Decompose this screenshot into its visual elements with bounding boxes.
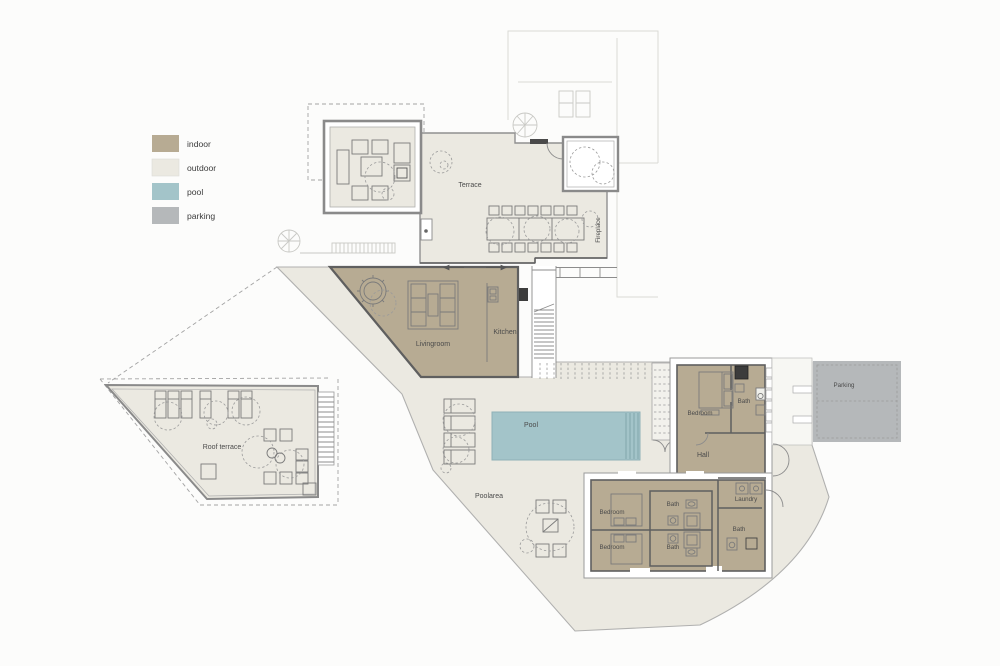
legend: indoor outdoor pool parking xyxy=(152,135,216,224)
floor-plan-drawing: Terrace Fireplace Livingroom Kitchen Poo… xyxy=(0,0,1000,666)
spiral-stair-upper xyxy=(513,113,537,137)
label-laundry: Laundry xyxy=(735,496,758,503)
spiral-stair-lower xyxy=(278,230,300,252)
lounge-pavilion xyxy=(324,121,421,213)
south-wing xyxy=(584,471,783,578)
sunlounger xyxy=(559,91,573,117)
fireplace-room-walls xyxy=(563,137,618,191)
label-poolarea: Poolarea xyxy=(475,493,503,500)
label-parking: Parking xyxy=(834,382,856,389)
legend-swatch-parking xyxy=(152,207,179,224)
legend-label-parking: parking xyxy=(187,211,215,221)
pool xyxy=(492,412,640,460)
parking-region xyxy=(813,361,901,442)
terrace-door-lintel xyxy=(530,139,548,144)
legend-swatch-outdoor xyxy=(152,159,179,176)
entry-step xyxy=(793,386,812,393)
parking xyxy=(813,361,901,442)
roof-terrace-stairs xyxy=(318,392,334,465)
label-bedroom-s2: Bedroom xyxy=(599,544,624,551)
toilet xyxy=(756,388,765,400)
lounge-floor xyxy=(330,127,415,207)
label-bath-ne: Bath xyxy=(738,398,751,405)
north-stair-ghost xyxy=(278,230,395,253)
label-pool: Pool xyxy=(524,422,538,429)
legend-label-indoor: indoor xyxy=(187,139,211,149)
stair-treads xyxy=(336,243,392,253)
site-boundary-dashed xyxy=(108,267,277,383)
sunlounger xyxy=(576,91,590,117)
entry-step xyxy=(793,416,812,423)
door-panel xyxy=(519,288,528,301)
stair-strip xyxy=(332,243,395,253)
label-terrace: Terrace xyxy=(458,182,481,189)
fireplace-room xyxy=(563,137,618,191)
label-bath-s1: Bath xyxy=(667,501,680,508)
label-bedroom-s1: Bedroom xyxy=(599,509,624,516)
legend-swatch-pool xyxy=(152,183,179,200)
floor-plan-page: Terrace Fireplace Livingroom Kitchen Poo… xyxy=(0,0,1000,666)
label-roof-terrace: Roof terrace xyxy=(203,444,242,451)
label-bath-s3: Bath xyxy=(733,526,746,533)
entry-path-region xyxy=(772,358,812,445)
terrace-side-fixture xyxy=(421,219,432,240)
kitchen-staircase xyxy=(532,266,556,378)
pool-basin xyxy=(492,412,640,460)
label-livingroom: Livingroom xyxy=(416,341,450,348)
label-bath-s2: Bath xyxy=(667,544,680,551)
label-bedroom-ne: Bedroom xyxy=(687,410,712,417)
legend-label-outdoor: outdoor xyxy=(187,163,216,173)
label-hall: Hall xyxy=(697,452,710,459)
legend-label-pool: pool xyxy=(187,187,203,197)
ghost-sunloungers xyxy=(559,91,590,117)
ghost-line xyxy=(617,38,658,297)
label-fireplace: Fireplace xyxy=(595,217,602,243)
legend-swatch-indoor xyxy=(152,135,179,152)
label-kitchen: Kitchen xyxy=(493,329,516,336)
shower xyxy=(735,366,748,379)
roof-terrace xyxy=(100,378,338,505)
fixture-dot xyxy=(424,229,428,233)
